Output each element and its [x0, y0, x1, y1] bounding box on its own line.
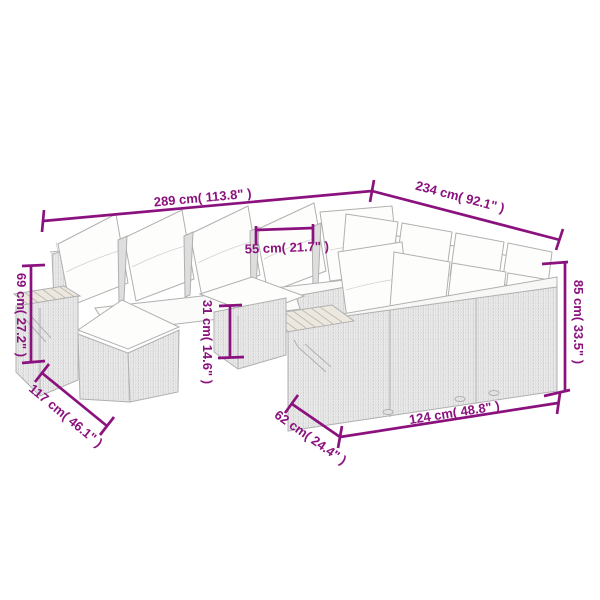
tick [557, 393, 560, 414]
dim-label-seat-height: 31 cm( 14.6" ) [200, 300, 215, 384]
tick [42, 210, 44, 232]
back-pillow [124, 210, 194, 301]
tick [100, 417, 114, 435]
tick [219, 305, 242, 306]
dimension-diagram: 289 cm( 113.8" ) 234 cm( 92.1" ) 55 cm( … [0, 0, 600, 600]
frame-wedge [184, 232, 193, 297]
dim-label-arm-height: 69 cm( 27.2" ) [14, 273, 29, 357]
sofa-illustration [14, 203, 557, 431]
foot [383, 410, 393, 415]
dim-label-seat-width: 55 cm( 21.7" ) [244, 239, 329, 257]
diagram-canvas: 289 cm( 113.8" ) 234 cm( 92.1" ) 55 cm( … [0, 0, 600, 600]
dim-label-back-height: 85 cm( 33.5" ) [571, 280, 586, 364]
tick [218, 357, 244, 358]
tick [22, 265, 45, 266]
foot [489, 391, 499, 396]
foot [455, 397, 465, 402]
frame-wedge [118, 236, 127, 302]
dim-label-overall-depth: 234 cm( 92.1" ) [414, 178, 506, 216]
